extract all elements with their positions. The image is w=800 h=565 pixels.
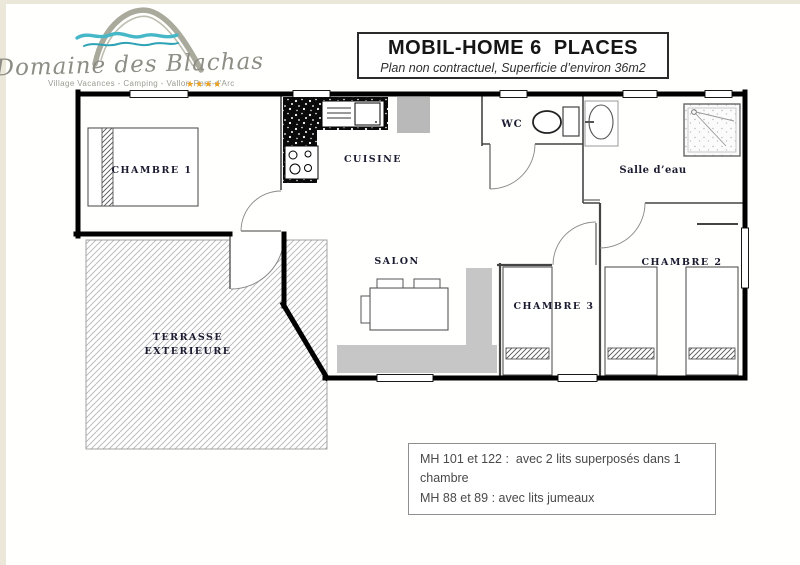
logo-wave-icon <box>77 34 177 38</box>
window-shower <box>705 91 732 98</box>
toilet-tank-icon <box>563 107 579 136</box>
note-line-2: MH 88 et 89 : avec lits jumeaux <box>420 489 704 508</box>
label-terrasse-1: TERRASSE <box>153 332 223 343</box>
window-cuisine <box>293 91 330 98</box>
bed-single-ch2-right-footboard <box>689 348 735 359</box>
fridge <box>397 97 430 133</box>
page-title: MOBIL-HOME 6 PLACES <box>359 37 667 60</box>
bed-single-ch2-left-footboard <box>608 348 654 359</box>
chair <box>377 279 403 288</box>
title-box: MOBIL-HOME 6 PLACES Plan non contractuel… <box>357 32 669 79</box>
sofa-right <box>466 268 492 345</box>
window-wc <box>500 91 527 98</box>
toilet-bowl-icon <box>533 111 561 133</box>
page-edge-left <box>0 0 6 565</box>
page-subtitle: Plan non contractuel, Superficie d’envir… <box>359 61 667 75</box>
window-salon <box>377 375 433 382</box>
logo-brand: Domaine des Blachas <box>0 48 264 81</box>
label-salon: SALON <box>374 256 419 267</box>
stove <box>285 146 318 179</box>
dining-table <box>370 288 448 330</box>
floor-plan-page: Domaine des Blachas Village Vacances - C… <box>0 0 800 565</box>
page-edge-top <box>0 0 800 4</box>
sink-drain-icon <box>375 121 377 123</box>
door-salle-arc <box>600 203 645 248</box>
door-ch1-arc <box>241 191 281 231</box>
door-wc-arc <box>490 144 535 189</box>
bathroom-fixtures <box>533 101 740 156</box>
label-terrasse-2: EXTERIEURE <box>145 346 232 357</box>
note-box: MH 101 et 122 : avec 2 lits superposés d… <box>408 443 716 515</box>
bed-single-ch3-footboard <box>506 348 549 359</box>
shower-tray <box>684 104 740 156</box>
label-salle-eau: Salle d’eau <box>619 165 686 176</box>
chair <box>361 296 370 323</box>
label-chambre1: CHAMBRE 1 <box>111 165 192 176</box>
door-ch3-arc <box>553 222 596 265</box>
logo: Domaine des Blachas Village Vacances - C… <box>0 10 264 90</box>
window-ch2-right <box>742 228 749 288</box>
label-chambre2: CHAMBRE 2 <box>641 257 722 268</box>
label-chambre3: CHAMBRE 3 <box>513 301 594 312</box>
window-ch3 <box>558 375 597 382</box>
window-salle <box>623 91 657 98</box>
note-line-1: MH 101 et 122 : avec 2 lits superposés d… <box>420 450 704 489</box>
logo-stars-icon: ★★★★ <box>186 80 222 90</box>
kitchen-fixtures <box>283 97 430 183</box>
sofa-bottom <box>337 345 497 373</box>
terrace-area <box>86 240 327 449</box>
chair <box>414 279 440 288</box>
label-cuisine: CUISINE <box>344 154 402 165</box>
window-ch1 <box>130 91 188 98</box>
salon-furniture <box>337 268 497 373</box>
label-wc: WC <box>500 119 522 130</box>
